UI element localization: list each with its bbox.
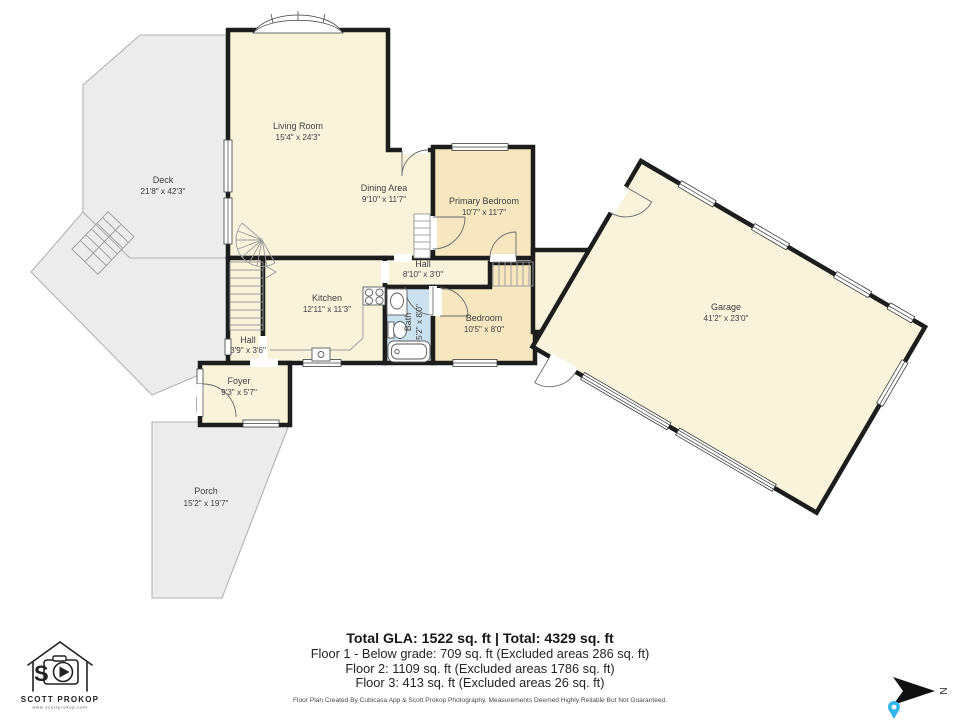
svg-text:9'3" x 5'7": 9'3" x 5'7": [221, 388, 257, 397]
bay-window: [253, 11, 343, 33]
svg-text:Dining Area: Dining Area: [361, 183, 408, 193]
total-gla-line: Total GLA: 1522 sq. ft | Total: 4329 sq.…: [346, 631, 614, 647]
svg-text:Bath: Bath: [403, 313, 413, 332]
svg-text:Foyer: Foyer: [227, 376, 250, 386]
svg-text:12'11" x 11'3": 12'11" x 11'3": [303, 305, 351, 314]
svg-text:Hall: Hall: [415, 259, 431, 269]
floor2-line: Floor 2: 1109 sq. ft (Excluded areas 178…: [345, 661, 614, 676]
north-arrow-icon: [893, 677, 935, 705]
svg-text:15'2" x 19'7": 15'2" x 19'7": [184, 499, 229, 508]
logo-camera-icon: S: [34, 656, 78, 686]
svg-text:Porch: Porch: [194, 486, 218, 496]
brand-name: SCOTT PROKOP: [21, 695, 99, 704]
svg-text:10'7" x 11'7": 10'7" x 11'7": [462, 208, 506, 217]
svg-text:21'8" x 42'3": 21'8" x 42'3": [141, 187, 186, 196]
svg-text:S: S: [34, 661, 49, 686]
svg-text:10'5" x 8'0": 10'5" x 8'0": [464, 325, 504, 334]
floor3-line: Floor 3: 413 sq. ft (Excluded areas 26 s…: [356, 675, 605, 690]
svg-text:41'2" x 23'0": 41'2" x 23'0": [704, 314, 749, 323]
bath-sink-icon: [387, 289, 407, 315]
floor1-line: Floor 1 - Below grade: 709 sq. ft (Exclu…: [311, 646, 650, 661]
location-pin-icon: [888, 701, 900, 719]
brand-logo: S SCOTT PROKOP www.scottprokop.com: [21, 642, 99, 710]
svg-text:Hall: Hall: [240, 335, 256, 345]
porch-area: [152, 422, 290, 598]
bathtub-icon: [388, 341, 430, 362]
stove-icon: [363, 287, 385, 305]
svg-text:3'9" x 3'6": 3'9" x 3'6": [230, 346, 266, 355]
deck-area: [83, 35, 227, 258]
svg-text:Primary Bedroom: Primary Bedroom: [449, 196, 519, 206]
svg-text:9'10" x 11'7": 9'10" x 11'7": [362, 195, 406, 204]
svg-text:Kitchen: Kitchen: [312, 293, 342, 303]
svg-text:Bedroom: Bedroom: [466, 313, 503, 323]
svg-text:Living Room: Living Room: [273, 121, 323, 131]
compass: N: [888, 677, 948, 719]
disclaimer: Floor Plan Created By Cubicasa App & Sco…: [293, 697, 667, 704]
brand-website: www.scottprokop.com: [33, 705, 88, 710]
footer-summary: Total GLA: 1522 sq. ft | Total: 4329 sq.…: [293, 631, 667, 704]
svg-text:8'10" x 3'0": 8'10" x 3'0": [403, 270, 443, 279]
stairwell-down: [414, 214, 430, 258]
floor-plan-canvas: Living Room 15'4" x 24'3" Dining Area 9'…: [0, 0, 960, 720]
svg-text:5'2" x 8'0": 5'2" x 8'0": [415, 304, 424, 340]
svg-text:Deck: Deck: [153, 175, 174, 185]
north-label: N: [937, 687, 948, 694]
svg-text:15'4" x 24'3": 15'4" x 24'3": [276, 133, 321, 142]
garage-block: [514, 156, 930, 540]
svg-text:Garage: Garage: [711, 302, 741, 312]
living-dining-floor: [228, 30, 433, 258]
